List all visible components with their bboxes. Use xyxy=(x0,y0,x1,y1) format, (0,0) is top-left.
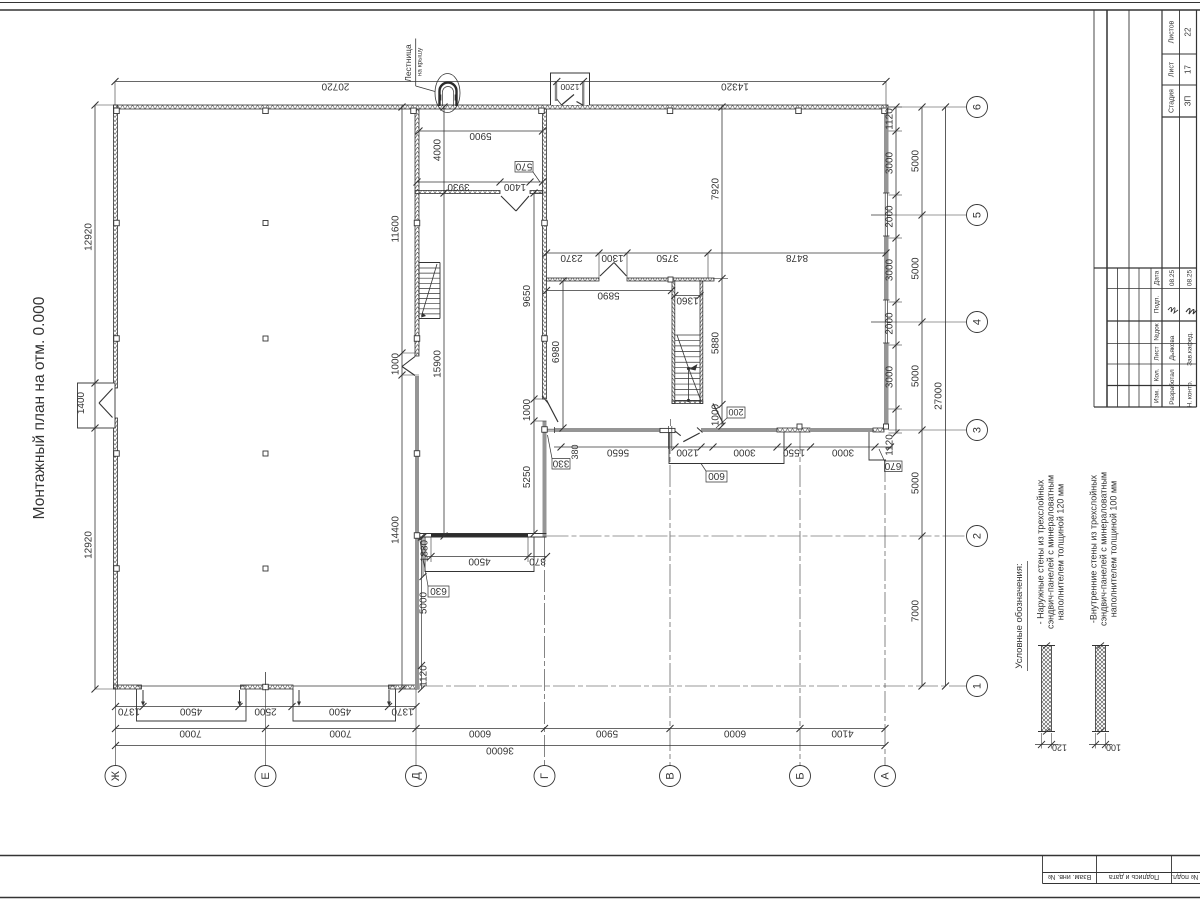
svg-text:В: В xyxy=(665,772,677,779)
svg-text:4500: 4500 xyxy=(328,706,351,717)
svg-text:08.25: 08.25 xyxy=(1187,269,1194,286)
svg-text:1360: 1360 xyxy=(676,295,699,306)
svg-text:5000: 5000 xyxy=(911,257,922,280)
svg-text:Б: Б xyxy=(795,772,807,779)
svg-text:14320: 14320 xyxy=(721,81,749,92)
svg-text:Лист: Лист xyxy=(1169,61,1176,77)
svg-text:Д: Д xyxy=(411,772,423,780)
svg-text:Е: Е xyxy=(260,772,272,779)
svg-text:3000: 3000 xyxy=(885,258,896,281)
svg-text:Подп.: Подп. xyxy=(1154,296,1161,313)
svg-text:3750: 3750 xyxy=(656,252,679,263)
svg-text:6000: 6000 xyxy=(723,728,746,739)
svg-text:наполнителем толщиной 100 мм: наполнителем толщиной 100 мм xyxy=(1109,481,1119,618)
svg-text:7000: 7000 xyxy=(179,728,202,739)
svg-text:Лестница: Лестница xyxy=(403,44,413,82)
svg-text:2000: 2000 xyxy=(885,312,896,335)
svg-text:100: 100 xyxy=(1106,743,1121,753)
svg-text:- Наружные стены из трехслойны: - Наружные стены из трехслойных xyxy=(1036,479,1046,624)
svg-text:1370: 1370 xyxy=(117,706,140,717)
svg-text:08.25: 08.25 xyxy=(1169,269,1176,286)
svg-text:3930: 3930 xyxy=(447,181,470,192)
svg-text:5000: 5000 xyxy=(911,471,922,494)
svg-text:870: 870 xyxy=(529,556,546,567)
svg-text:5000: 5000 xyxy=(911,149,922,172)
svg-text:27000: 27000 xyxy=(934,382,945,410)
svg-text:12920: 12920 xyxy=(84,531,95,559)
svg-text:9650: 9650 xyxy=(522,284,533,307)
svg-text:330: 330 xyxy=(552,458,569,469)
svg-text:5: 5 xyxy=(972,212,984,218)
svg-text:5890: 5890 xyxy=(597,290,620,301)
svg-text:1400: 1400 xyxy=(76,391,87,414)
svg-text:на крышу: на крышу xyxy=(417,47,424,76)
svg-text:Изм.: Изм. xyxy=(1154,389,1161,403)
svg-text:6980: 6980 xyxy=(551,340,562,363)
svg-text:Инв. № подл.: Инв. № подл. xyxy=(1171,873,1200,880)
svg-text:4100: 4100 xyxy=(831,728,854,739)
svg-text:3000: 3000 xyxy=(831,447,854,458)
svg-text:2500: 2500 xyxy=(254,706,277,717)
svg-text:8478: 8478 xyxy=(785,252,808,263)
svg-text:630: 630 xyxy=(430,585,447,596)
svg-text:Условные обозначения:: Условные обозначения: xyxy=(1014,563,1025,668)
svg-text:1120: 1120 xyxy=(885,434,896,456)
svg-text:Подпись и дата: Подпись и дата xyxy=(1109,873,1159,880)
svg-text:15900: 15900 xyxy=(433,350,444,378)
svg-text:Листов: Листов xyxy=(1169,20,1176,43)
svg-text:2370: 2370 xyxy=(560,252,583,263)
svg-text:670: 670 xyxy=(884,460,901,471)
svg-text:Взам. инв. №: Взам. инв. № xyxy=(1048,873,1091,880)
svg-text:5250: 5250 xyxy=(522,465,533,488)
svg-text:А: А xyxy=(880,772,892,780)
svg-text:5000: 5000 xyxy=(911,364,922,387)
svg-text:7000: 7000 xyxy=(329,728,352,739)
svg-text:Стадия: Стадия xyxy=(1169,89,1176,113)
svg-text:4500: 4500 xyxy=(179,706,202,717)
svg-text:1000: 1000 xyxy=(522,398,533,421)
svg-text:наполнителем толщиной 120 мм: наполнителем толщиной 120 мм xyxy=(1056,484,1066,621)
svg-text:2000: 2000 xyxy=(885,205,896,228)
svg-text:380: 380 xyxy=(570,444,580,459)
svg-text:№док: №док xyxy=(1154,323,1161,340)
svg-text:Ж: Ж xyxy=(110,771,122,781)
svg-text:Дата: Дата xyxy=(1154,270,1161,285)
svg-text:1200: 1200 xyxy=(676,447,699,458)
svg-text:2: 2 xyxy=(972,533,984,539)
svg-text:11600: 11600 xyxy=(391,215,402,243)
svg-text:22: 22 xyxy=(1184,27,1193,36)
svg-text:600: 600 xyxy=(708,470,725,481)
svg-text:-Внутренние стены из трехслойн: -Внутренние стены из трехслойных xyxy=(1089,474,1099,623)
svg-text:17: 17 xyxy=(1184,65,1193,74)
svg-text:Дьякова: Дьякова xyxy=(1169,335,1176,360)
svg-text:5000: 5000 xyxy=(419,591,430,614)
svg-text:1120: 1120 xyxy=(419,665,430,687)
svg-text:1200: 1200 xyxy=(560,82,579,92)
svg-text:4000: 4000 xyxy=(433,138,444,161)
svg-text:Лист: Лист xyxy=(1154,346,1161,360)
svg-text:1300: 1300 xyxy=(601,252,624,263)
svg-text:5650: 5650 xyxy=(606,447,629,458)
svg-text:1120: 1120 xyxy=(885,108,896,130)
svg-text:Монтажный план на отм. 0.000: Монтажный план на отм. 0.000 xyxy=(31,296,48,519)
svg-text:Зав.кафед.: Зав.кафед. xyxy=(1187,332,1194,366)
svg-text:Разработал: Разработал xyxy=(1168,369,1176,405)
svg-text:3000: 3000 xyxy=(885,151,896,174)
svg-text:120: 120 xyxy=(1052,743,1067,753)
svg-text:6000: 6000 xyxy=(468,728,491,739)
svg-text:5900: 5900 xyxy=(595,728,618,739)
svg-text:1550: 1550 xyxy=(782,447,805,458)
svg-text:3000: 3000 xyxy=(885,365,896,388)
svg-text:Г: Г xyxy=(539,773,551,779)
svg-text:сэндвич-панелей с минераловатн: сэндвич-панелей с минераловатным xyxy=(1099,472,1109,626)
svg-text:6: 6 xyxy=(972,104,984,110)
svg-text:Н. контр.: Н. контр. xyxy=(1187,380,1194,407)
svg-text:Кол.: Кол. xyxy=(1154,368,1161,381)
svg-text:ЗП: ЗП xyxy=(1184,95,1193,106)
svg-text:1000: 1000 xyxy=(711,403,722,426)
svg-text:1: 1 xyxy=(972,683,984,689)
svg-text:5900: 5900 xyxy=(469,130,492,141)
svg-text:570: 570 xyxy=(515,161,532,172)
svg-text:5880: 5880 xyxy=(711,331,722,354)
svg-text:3: 3 xyxy=(972,427,984,433)
svg-text:1370: 1370 xyxy=(391,706,414,717)
svg-text:3000: 3000 xyxy=(733,447,756,458)
svg-text:7000: 7000 xyxy=(911,599,922,622)
svg-text:14400: 14400 xyxy=(391,516,402,544)
svg-text:1000: 1000 xyxy=(391,352,402,375)
svg-text:36000: 36000 xyxy=(486,745,514,756)
svg-text:сэндвич-панелей с минераловатн: сэндвич-панелей с минераловатным xyxy=(1046,475,1056,629)
svg-text:200: 200 xyxy=(728,407,743,417)
svg-text:12920: 12920 xyxy=(84,223,95,251)
svg-text:20720: 20720 xyxy=(321,81,349,92)
svg-text:4500: 4500 xyxy=(468,556,491,567)
svg-text:4: 4 xyxy=(972,319,984,325)
svg-text:7920: 7920 xyxy=(711,177,722,200)
svg-text:1400: 1400 xyxy=(503,181,526,192)
